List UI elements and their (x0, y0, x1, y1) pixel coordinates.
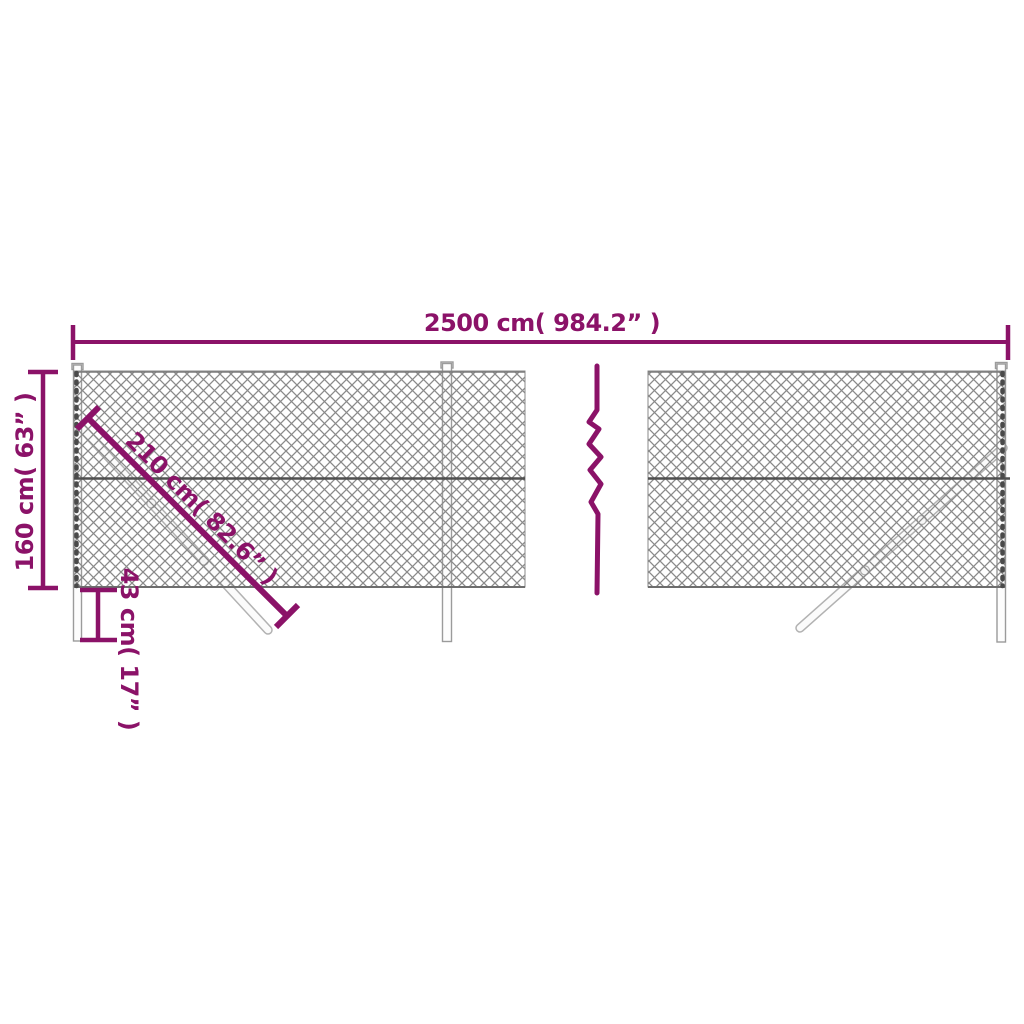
width-dimension-label: 2500 cm( 984.2” ) (424, 309, 660, 337)
post-depth-dimension-label: 43 cm( 17” ) (115, 568, 143, 731)
fence-dimension-diagram: 2500 cm( 984.2” ) 160 cm( 63” ) 210 cm( … (0, 0, 1024, 1024)
diagram-svg: 2500 cm( 984.2” ) 160 cm( 63” ) 210 cm( … (0, 0, 1024, 1024)
left-mesh-panel (74, 371, 525, 587)
height-dimension: 160 cm( 63” ) (11, 372, 58, 588)
break-zigzag-symbol (589, 366, 601, 593)
width-dimension: 2500 cm( 984.2” ) (73, 309, 1008, 360)
right-mesh-panel (648, 371, 1010, 587)
height-dimension-label: 160 cm( 63” ) (11, 392, 39, 571)
post-depth-dimension: 43 cm( 17” ) (80, 568, 143, 731)
